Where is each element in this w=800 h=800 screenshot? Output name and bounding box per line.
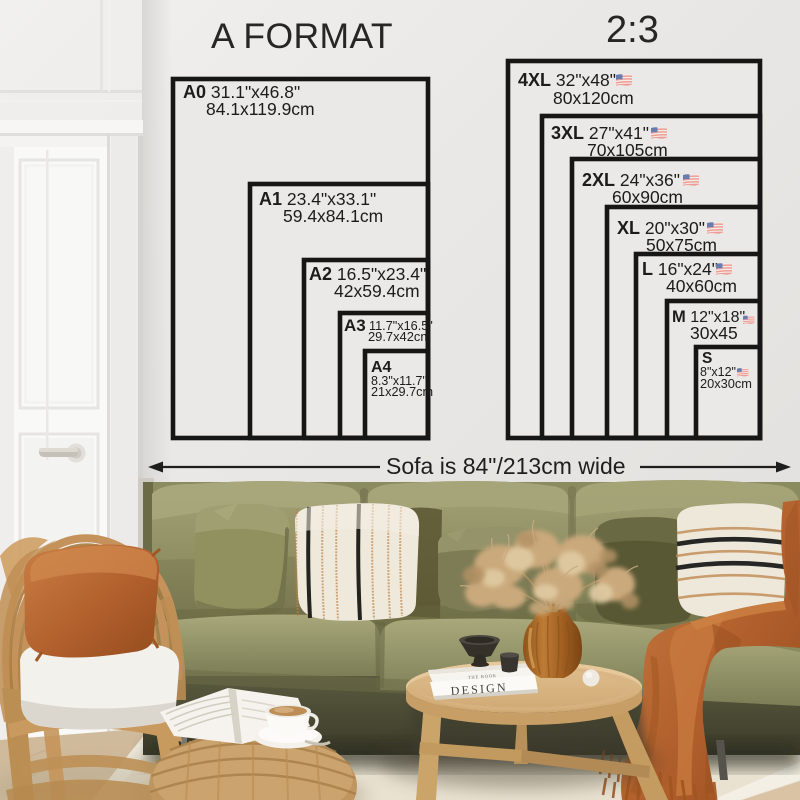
svg-text:40x60cm: 40x60cm — [666, 276, 737, 296]
svg-text:21x29.7cm: 21x29.7cm — [371, 385, 433, 399]
svg-text:20x30cm: 20x30cm — [700, 376, 752, 391]
svg-text:84.1x119.9cm: 84.1x119.9cm — [206, 99, 315, 119]
svg-text:2:3: 2:3 — [606, 9, 659, 51]
svg-text:42x59.4cm: 42x59.4cm — [334, 281, 420, 301]
svg-text:70x105cm: 70x105cm — [587, 140, 668, 160]
svg-text:4XL 32"x48": 4XL 32"x48" — [518, 70, 616, 90]
svg-text:A FORMAT: A FORMAT — [211, 16, 393, 56]
svg-text:50x75cm: 50x75cm — [646, 235, 717, 255]
svg-text:59.4x84.1cm: 59.4x84.1cm — [283, 206, 383, 226]
svg-text:60x90cm: 60x90cm — [612, 187, 683, 207]
svg-text:30x45: 30x45 — [690, 323, 738, 343]
svg-text:A3: A3 — [344, 316, 366, 335]
svg-text:29.7x42cm: 29.7x42cm — [368, 329, 431, 344]
svg-text:80x120cm: 80x120cm — [553, 88, 634, 108]
svg-text:Sofa is 84"/213cm wide: Sofa is 84"/213cm wide — [386, 453, 626, 479]
